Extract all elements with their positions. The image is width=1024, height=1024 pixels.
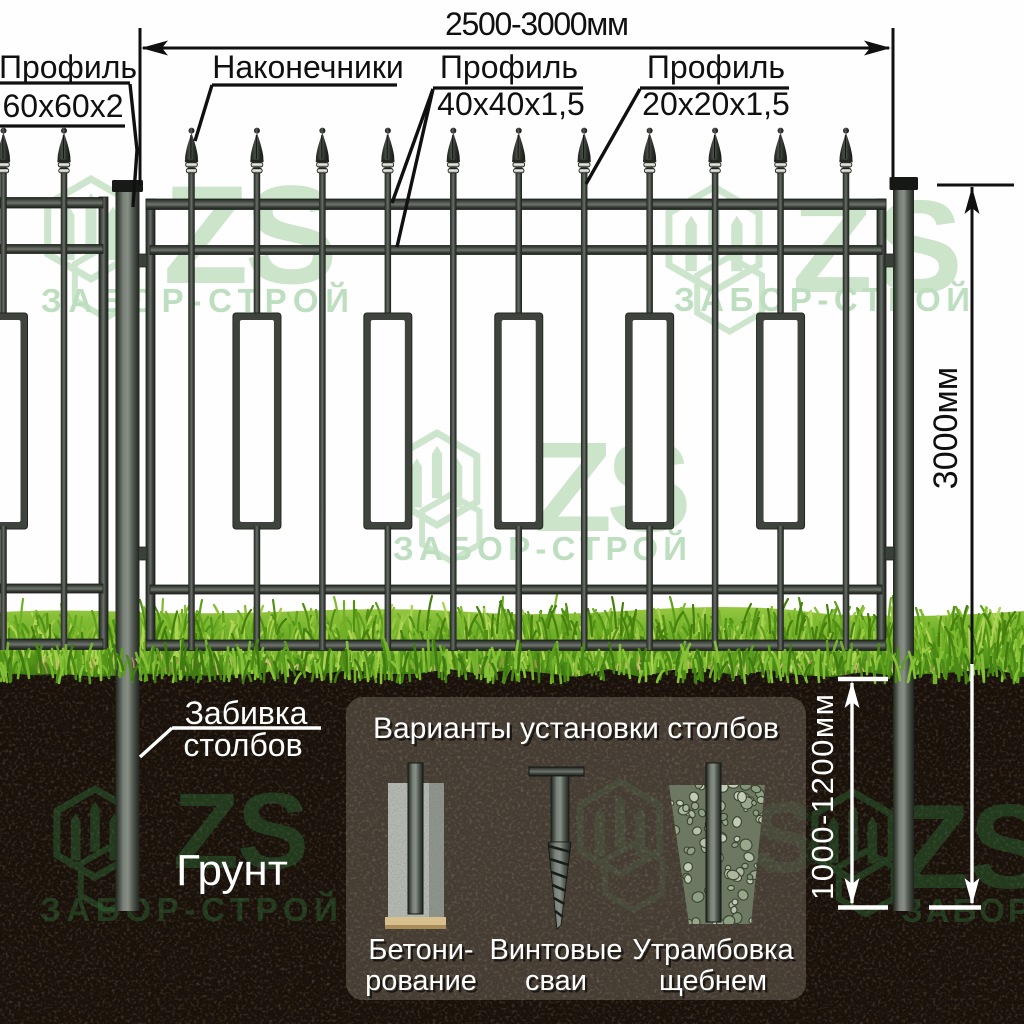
svg-text:ЗАБОР-СТРОЙ: ЗАБОР-СТРОЙ: [41, 281, 349, 319]
svg-text:Варианты установки столбов: Варианты установки столбов: [373, 712, 779, 745]
svg-text:Наконечники: Наконечники: [212, 49, 404, 85]
svg-text:Забивка: Забивка: [185, 695, 308, 731]
svg-text:ЗАБОР-СТРОЙ: ЗАБОР-СТРОЙ: [902, 891, 1024, 929]
svg-text:Профиль: Профиль: [440, 49, 578, 85]
svg-text:сваи: сваи: [525, 965, 587, 997]
svg-text:Утрамбовка: Утрамбовка: [632, 934, 794, 966]
svg-text:2500-3000мм: 2500-3000мм: [445, 6, 629, 42]
svg-text:Грунт: Грунт: [176, 846, 288, 895]
svg-text:щебнем: щебнем: [659, 965, 767, 997]
svg-text:рование: рование: [365, 965, 477, 997]
svg-text:20х20х1,5: 20х20х1,5: [642, 86, 790, 122]
svg-text:1000-1200мм: 1000-1200мм: [805, 694, 840, 900]
svg-text:Бетони-: Бетони-: [368, 934, 473, 966]
svg-text:ЗАБОР-СТРОЙ: ЗАБОР-СТРОЙ: [393, 529, 687, 567]
svg-text:ЗАБОР-СТРОЙ: ЗАБОР-СТРОЙ: [40, 890, 338, 928]
svg-text:Винтовые: Винтовые: [489, 934, 622, 966]
svg-text:60х60х2: 60х60х2: [3, 88, 124, 124]
svg-text:столбов: столбов: [183, 727, 302, 763]
svg-text:Профиль: Профиль: [647, 49, 785, 85]
svg-text:3000мм: 3000мм: [927, 367, 965, 489]
svg-text:40х40х1,5: 40х40х1,5: [437, 86, 585, 122]
svg-text:Профиль: Профиль: [0, 49, 137, 85]
svg-text:ЗАБОР-СТРОЙ: ЗАБОР-СТРОЙ: [674, 280, 970, 318]
